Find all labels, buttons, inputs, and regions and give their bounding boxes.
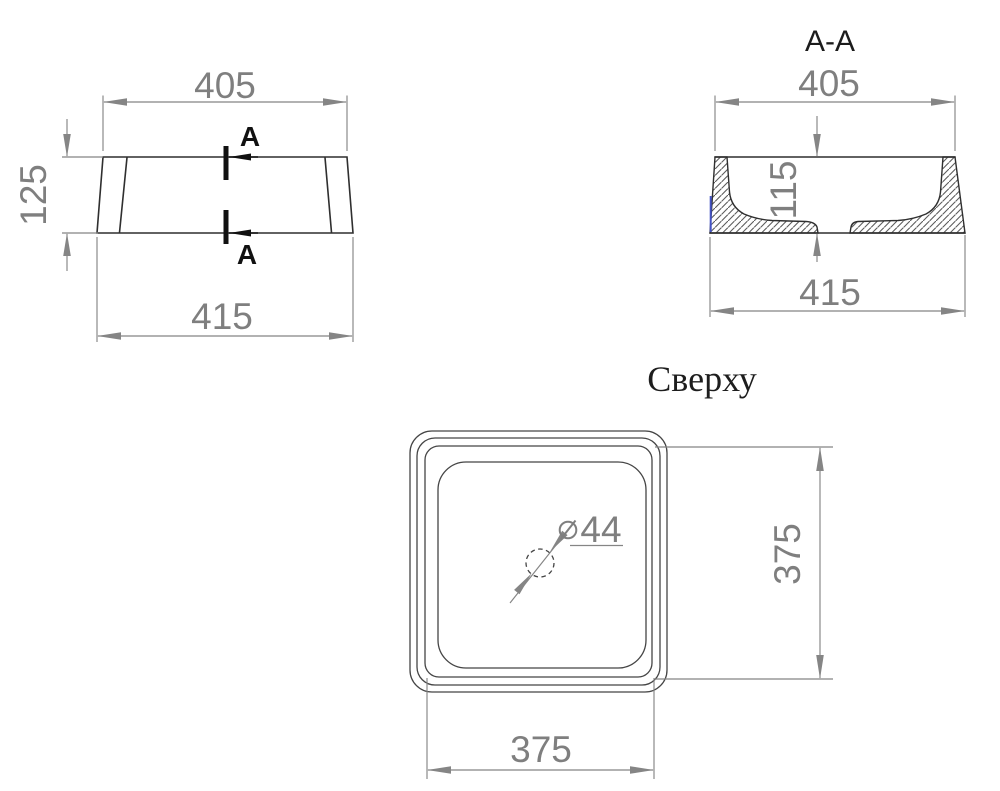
front-view: 405 125 415 A	[13, 65, 353, 342]
front-dim-bottom-width: 415	[97, 237, 353, 342]
top-view-title: Сверху	[647, 359, 756, 399]
section-dim-top-width-label: 405	[798, 63, 860, 104]
top-view: Сверху 44 375	[410, 359, 833, 779]
front-section-mark-top-label: A	[240, 121, 260, 152]
front-dim-bottom-width-label: 415	[191, 296, 253, 337]
section-dim-depth: 115	[763, 116, 821, 262]
section-dim-depth-label: 115	[763, 161, 804, 220]
section-dim-bottom-width: 415	[710, 235, 965, 317]
section-view: A-A 405 115 415	[710, 25, 965, 317]
top-basin-contour	[438, 462, 646, 668]
front-dim-height: 125	[13, 119, 103, 271]
top-dim-height-label: 375	[767, 523, 808, 585]
front-dim-height-label: 125	[13, 164, 54, 226]
section-title: A-A	[805, 25, 855, 58]
top-dim-height: 375	[655, 447, 833, 679]
section-dim-top-width: 405	[715, 63, 955, 151]
front-section-cut-marks: A A	[226, 121, 260, 270]
drawing-svg: 405 125 415 A	[0, 0, 1000, 791]
front-inner-left-edge	[120, 158, 128, 233]
top-dim-width: 375	[427, 678, 654, 779]
top-rim-contour-2	[417, 438, 660, 685]
top-rim-contour-3	[425, 446, 652, 677]
top-drain-dimension: 44	[510, 509, 623, 603]
front-section-mark-bottom-label: A	[237, 239, 257, 270]
section-right-wall	[850, 157, 965, 233]
front-dim-top-width: 405	[103, 65, 347, 151]
top-dim-width-label: 375	[510, 729, 572, 770]
top-outer-contour	[410, 431, 667, 692]
front-dim-top-width-label: 405	[194, 65, 256, 106]
front-inner-right-edge	[325, 158, 332, 233]
section-dim-bottom-width-label: 415	[799, 272, 861, 313]
technical-drawing: 405 125 415 A	[0, 0, 1000, 791]
drain-diameter-label: 44	[580, 509, 621, 550]
